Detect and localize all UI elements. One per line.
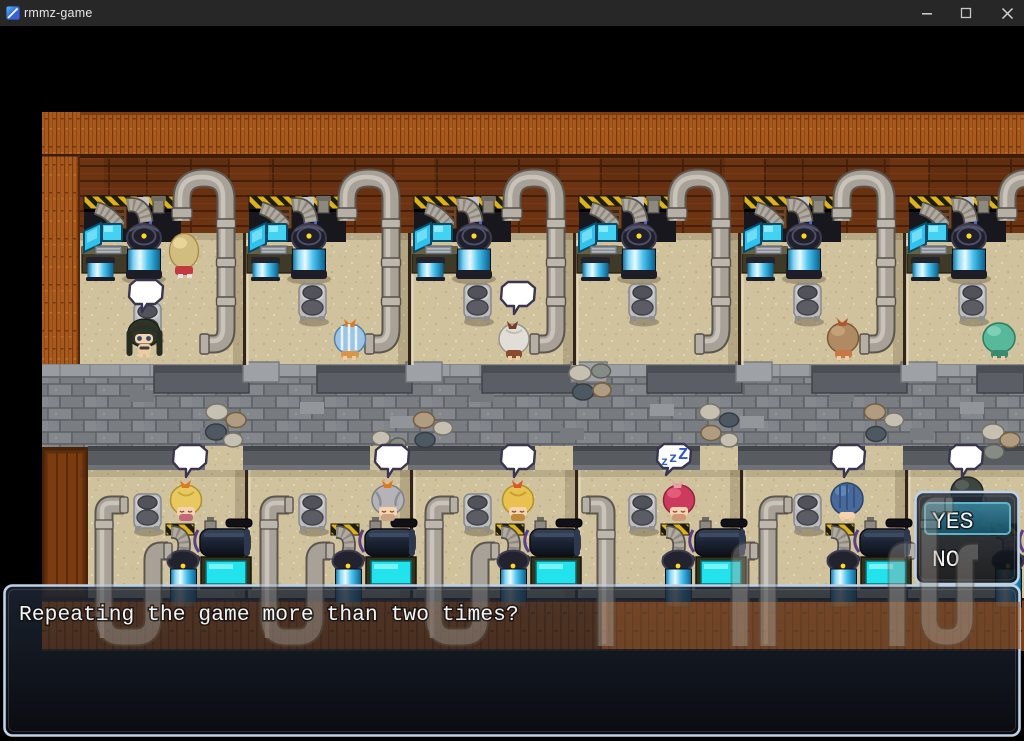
- svg-text:z: z: [661, 455, 668, 469]
- svg-text:Repeating the game more than t: Repeating the game more than two times?: [19, 603, 519, 627]
- svg-text:z: z: [669, 451, 677, 467]
- svg-text:Z: Z: [678, 446, 688, 465]
